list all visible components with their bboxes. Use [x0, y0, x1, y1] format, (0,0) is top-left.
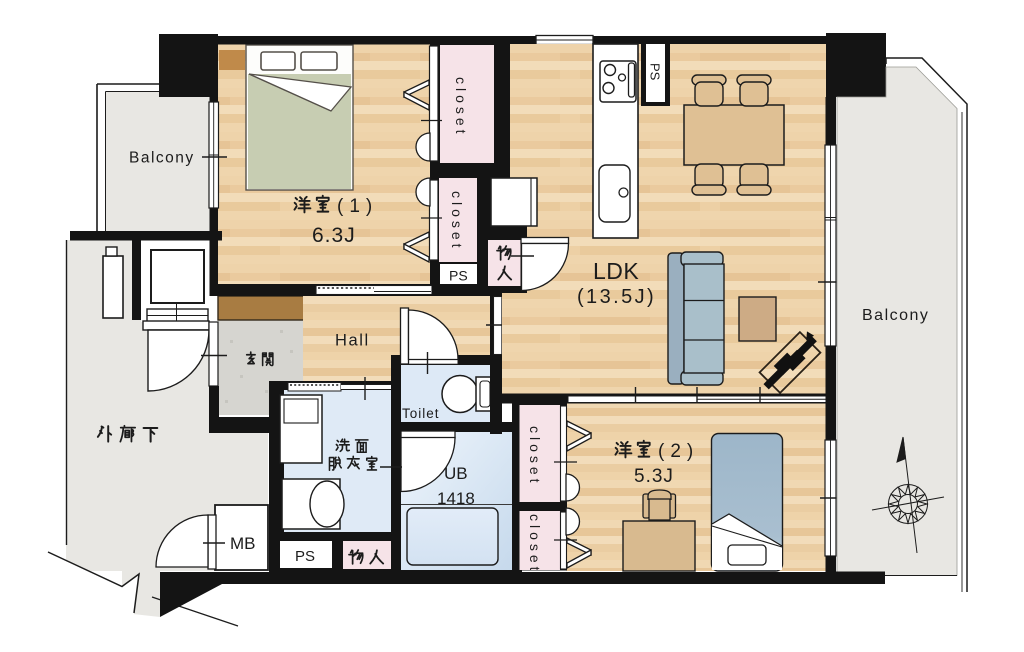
svg-text:closet: closet	[527, 514, 543, 575]
svg-text:5.3J: 5.3J	[634, 466, 674, 487]
svg-text:Balcony: Balcony	[862, 307, 929, 324]
svg-text:PS: PS	[648, 63, 663, 81]
svg-text:6.3J: 6.3J	[312, 224, 356, 247]
svg-text:(13.5J): (13.5J)	[577, 286, 656, 308]
svg-text:closet: closet	[449, 191, 465, 252]
svg-text:Balcony: Balcony	[129, 150, 195, 167]
svg-text:PS: PS	[295, 548, 315, 565]
svg-text:closet: closet	[527, 426, 543, 487]
svg-text:MB: MB	[230, 534, 256, 553]
svg-text:(1): (1)	[337, 196, 378, 217]
svg-text:1418: 1418	[437, 489, 475, 508]
svg-text:LDK: LDK	[593, 258, 639, 284]
svg-text:Hall: Hall	[335, 332, 370, 350]
svg-text:Toilet: Toilet	[402, 406, 440, 421]
svg-text:PS: PS	[449, 268, 468, 284]
svg-text:UB: UB	[444, 464, 468, 483]
svg-text:(2): (2)	[658, 441, 699, 462]
svg-text:closet: closet	[453, 77, 469, 138]
